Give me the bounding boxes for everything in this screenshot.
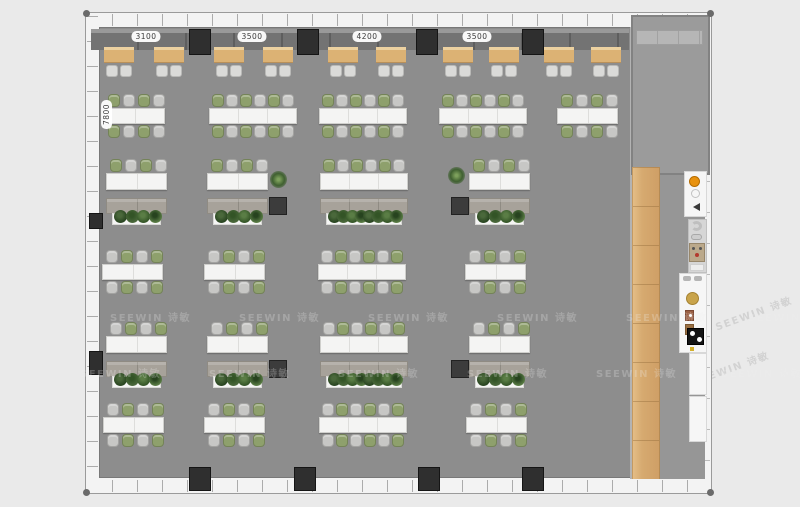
office-chair [512, 125, 524, 138]
office-chair [350, 434, 362, 447]
booth-chair [230, 65, 242, 77]
office-chair [208, 434, 220, 447]
office-chair [485, 434, 497, 447]
small-fixture [691, 234, 702, 240]
office-chair [512, 94, 524, 107]
booth-chair [216, 65, 228, 77]
office-chair [473, 322, 485, 335]
office-chair [226, 125, 238, 138]
office-chair [208, 403, 220, 416]
office-chair [223, 281, 235, 294]
office-chair [337, 322, 349, 335]
sink-bowl [689, 176, 700, 187]
booth-chair [491, 65, 503, 77]
office-chair [238, 403, 250, 416]
workstation-desk [439, 108, 527, 124]
office-chair [470, 434, 482, 447]
pantry-panel [688, 219, 707, 273]
meeting-room [631, 15, 710, 175]
office-chair [393, 322, 405, 335]
office-chair [226, 94, 238, 107]
office-chair [488, 159, 500, 172]
office-chair [136, 281, 148, 294]
office-chair [499, 281, 511, 294]
office-chair [155, 159, 167, 172]
office-chair [364, 403, 376, 416]
workstation-desk [103, 417, 164, 433]
office-chair [122, 403, 134, 416]
induction-cooktop [687, 328, 704, 345]
office-chair [223, 403, 235, 416]
office-chair [138, 125, 150, 138]
office-chair [484, 281, 496, 294]
office-chair [323, 159, 335, 172]
dimension-label: 3500 [462, 31, 491, 42]
office-chair [379, 322, 391, 335]
wood-walkway [632, 167, 660, 479]
planter-shrub [512, 373, 525, 386]
office-chair [364, 434, 376, 447]
office-chair [106, 281, 118, 294]
office-chair [138, 94, 150, 107]
office-chair [151, 250, 163, 263]
column [416, 29, 438, 55]
workstation-desk [204, 264, 265, 280]
coffee-station-counter [679, 273, 707, 353]
burner [690, 331, 695, 336]
office-chair [238, 281, 250, 294]
office-chair [365, 159, 377, 172]
office-chair [392, 403, 404, 416]
booth-chair [560, 65, 572, 77]
left-wall-windows [87, 15, 98, 491]
office-chair [336, 403, 348, 416]
office-chair [137, 403, 149, 416]
dimension-label: 4200 [352, 31, 381, 42]
column [522, 467, 544, 491]
warning-marker [690, 347, 694, 351]
office-chair [336, 434, 348, 447]
office-chair [378, 125, 390, 138]
dark-cabinet [451, 197, 469, 215]
booth-chair [265, 65, 277, 77]
booth-chair [378, 65, 390, 77]
office-chair [498, 94, 510, 107]
workstation-desk [209, 108, 297, 124]
booth-chair [459, 65, 471, 77]
potted-plant [270, 171, 287, 188]
office-chair [485, 403, 497, 416]
office-chair [253, 403, 265, 416]
focus-desk [320, 336, 408, 353]
office-chair [364, 125, 376, 138]
office-chair [256, 322, 268, 335]
column [418, 467, 440, 491]
office-chair [470, 94, 482, 107]
office-chair [240, 125, 252, 138]
office-chair [268, 125, 280, 138]
office-chair [484, 125, 496, 138]
office-chair [223, 250, 235, 263]
column [189, 467, 211, 491]
office-chair [241, 159, 253, 172]
booth-table [263, 47, 293, 63]
office-chair [140, 322, 152, 335]
office-chair [363, 250, 375, 263]
office-chair [379, 159, 391, 172]
column [189, 29, 211, 55]
office-chair [254, 94, 266, 107]
office-chair [226, 159, 238, 172]
office-chair [152, 403, 164, 416]
planter-shrub [512, 210, 525, 223]
booth-chair [392, 65, 404, 77]
office-chair [155, 322, 167, 335]
focus-desk [320, 173, 408, 190]
workstation-desk [204, 417, 265, 433]
focus-desk [106, 173, 167, 190]
dark-cabinet [269, 360, 287, 378]
office-chair [378, 434, 390, 447]
office-chair [282, 125, 294, 138]
office-chair [254, 125, 266, 138]
focus-desk [469, 336, 530, 353]
office-chair [125, 159, 137, 172]
office-chair [498, 125, 510, 138]
booth-table [154, 47, 184, 63]
pantry-counter-sink [684, 171, 707, 217]
booth-chair [607, 65, 619, 77]
office-chair [351, 322, 363, 335]
planter-shrub [390, 373, 403, 386]
office-chair [518, 159, 530, 172]
workstation-desk [319, 417, 407, 433]
column [297, 29, 319, 55]
office-chair [110, 322, 122, 335]
office-chair [514, 281, 526, 294]
office-chair [377, 281, 389, 294]
office-chair [391, 281, 403, 294]
office-chair [212, 125, 224, 138]
office-chair [378, 94, 390, 107]
office-chair [392, 125, 404, 138]
office-chair [515, 434, 527, 447]
office-chair [576, 125, 588, 138]
office-chair [323, 322, 335, 335]
office-chair [337, 159, 349, 172]
coffee-machine [685, 310, 694, 321]
booth-table [544, 47, 574, 63]
office-chair [137, 434, 149, 447]
workstation-desk [465, 264, 526, 280]
knob [692, 247, 695, 250]
workstation-desk [466, 417, 527, 433]
office-chair [469, 250, 481, 263]
column [89, 213, 103, 229]
dimension-label-vertical: 7800 [101, 100, 112, 129]
shelf [690, 264, 704, 271]
booth-table [443, 47, 473, 63]
office-chair [238, 434, 250, 447]
dark-cabinet [451, 360, 469, 378]
planter-shrub [149, 210, 162, 223]
office-chair [500, 434, 512, 447]
office-chair [364, 94, 376, 107]
office-chair [110, 159, 122, 172]
office-chair [256, 159, 268, 172]
office-chair [121, 281, 133, 294]
column [294, 467, 316, 491]
office-chair [208, 281, 220, 294]
office-chair [393, 159, 405, 172]
office-chair [122, 434, 134, 447]
knob [699, 247, 702, 250]
round-tray [686, 292, 699, 305]
workstation-desk [319, 108, 407, 124]
booth-table [104, 47, 134, 63]
office-chair [322, 94, 334, 107]
focus-desk [207, 173, 268, 190]
office-chair [470, 125, 482, 138]
booth-chair [279, 65, 291, 77]
top-wall-windows [88, 14, 709, 26]
planter-shrub [250, 373, 263, 386]
office-chair [322, 403, 334, 416]
dimension-label: 3100 [131, 31, 160, 42]
office-chair [456, 125, 468, 138]
office-chair [349, 281, 361, 294]
workstation-desk [102, 264, 163, 280]
dark-cabinet [269, 197, 287, 215]
office-chair [106, 250, 118, 263]
focus-desk [207, 336, 268, 353]
office-chair [336, 125, 348, 138]
planter-shrub [149, 373, 162, 386]
building-outline: 31003500420035007800SEEWIN 诗敏SEEWIN 诗敏SE… [85, 12, 712, 494]
office-chair [503, 322, 515, 335]
wall-cabinet [689, 396, 707, 442]
office-chair [212, 94, 224, 107]
office-chair [363, 281, 375, 294]
office-chair [107, 403, 119, 416]
office-chair [123, 125, 135, 138]
booth-table [489, 47, 519, 63]
office-chair [503, 159, 515, 172]
office-chair [123, 94, 135, 107]
booth-chair [445, 65, 457, 77]
office-chair [377, 250, 389, 263]
booth-chair [505, 65, 517, 77]
office-chair [211, 159, 223, 172]
focus-desk [106, 336, 167, 353]
office-chair [208, 250, 220, 263]
small-appliance [683, 276, 691, 281]
booth-chair [344, 65, 356, 77]
office-chair [591, 94, 603, 107]
office-chair [378, 403, 390, 416]
booth-table [328, 47, 358, 63]
faucet-ring [691, 189, 700, 198]
office-chair [391, 250, 403, 263]
office-chair [392, 434, 404, 447]
office-chair [336, 94, 348, 107]
office-chair [561, 94, 573, 107]
office-chair [253, 281, 265, 294]
office-chair [561, 125, 573, 138]
small-appliance [694, 276, 702, 281]
office-chair [226, 322, 238, 335]
dimension-label: 3500 [237, 31, 266, 42]
office-chair [151, 281, 163, 294]
office-chair [473, 159, 485, 172]
booth-chair [330, 65, 342, 77]
burner [697, 337, 702, 342]
office-chair [484, 94, 496, 107]
office-chair [606, 94, 618, 107]
cooktop-unit [689, 243, 705, 262]
planter-shrub [390, 210, 403, 223]
office-chair [321, 250, 333, 263]
column [89, 351, 103, 375]
office-chair [606, 125, 618, 138]
credenza-cabinet [636, 30, 703, 45]
planter-shrub [250, 210, 263, 223]
office-chair [514, 250, 526, 263]
office-chair [484, 250, 496, 263]
button [689, 314, 692, 317]
office-chair [107, 434, 119, 447]
office-chair [238, 250, 250, 263]
office-chair [253, 434, 265, 447]
office-chair [322, 434, 334, 447]
office-chair [253, 250, 265, 263]
office-chair [456, 94, 468, 107]
office-chair [136, 250, 148, 263]
office-chair [515, 403, 527, 416]
corner-joint [707, 10, 714, 17]
office-chair [211, 322, 223, 335]
office-chair [351, 159, 363, 172]
corner-joint [83, 489, 90, 496]
booth-chair [106, 65, 118, 77]
watermark-background: SEEWIN 诗敏 [713, 292, 794, 334]
office-chair [268, 94, 280, 107]
burner-dot [695, 253, 699, 257]
booth-chair [156, 65, 168, 77]
office-chair [365, 322, 377, 335]
floor-plan-canvas: SEEWIN 诗敏 SEEWIN 诗敏 [0, 0, 800, 507]
booth-chair [593, 65, 605, 77]
booth-chair [546, 65, 558, 77]
office-chair [321, 281, 333, 294]
basin-fixture [691, 221, 702, 231]
office-chair [125, 322, 137, 335]
office-chair [518, 322, 530, 335]
office-chair [350, 403, 362, 416]
office-chair [153, 94, 165, 107]
office-chair [499, 250, 511, 263]
office-chair [240, 94, 252, 107]
office-chair [349, 250, 361, 263]
office-chair [392, 94, 404, 107]
office-chair [223, 434, 235, 447]
wall-cabinet [689, 353, 707, 395]
fixture-icon [693, 203, 700, 211]
office-chair [322, 125, 334, 138]
office-chair [470, 403, 482, 416]
workstation-desk [318, 264, 406, 280]
office-chair [442, 125, 454, 138]
office-chair [488, 322, 500, 335]
focus-desk [469, 173, 530, 190]
office-chair [442, 94, 454, 107]
booth-table [376, 47, 406, 63]
office-chair [500, 403, 512, 416]
office-chair [591, 125, 603, 138]
office-chair [350, 125, 362, 138]
corner-joint [83, 10, 90, 17]
office-chair [152, 434, 164, 447]
workstation-desk [557, 108, 618, 124]
office-chair [335, 281, 347, 294]
office-chair [335, 250, 347, 263]
booth-table [591, 47, 621, 63]
workstation-desk [104, 108, 165, 124]
office-chair [469, 281, 481, 294]
office-chair [121, 250, 133, 263]
potted-plant [448, 167, 465, 184]
office-chair [241, 322, 253, 335]
corner-joint [707, 489, 714, 496]
office-chair [140, 159, 152, 172]
booth-table [214, 47, 244, 63]
bottom-wall-windows [88, 480, 709, 492]
column [522, 29, 544, 55]
office-chair [350, 94, 362, 107]
booth-chair [170, 65, 182, 77]
office-chair [576, 94, 588, 107]
office-chair [282, 94, 294, 107]
booth-chair [120, 65, 132, 77]
office-chair [153, 125, 165, 138]
